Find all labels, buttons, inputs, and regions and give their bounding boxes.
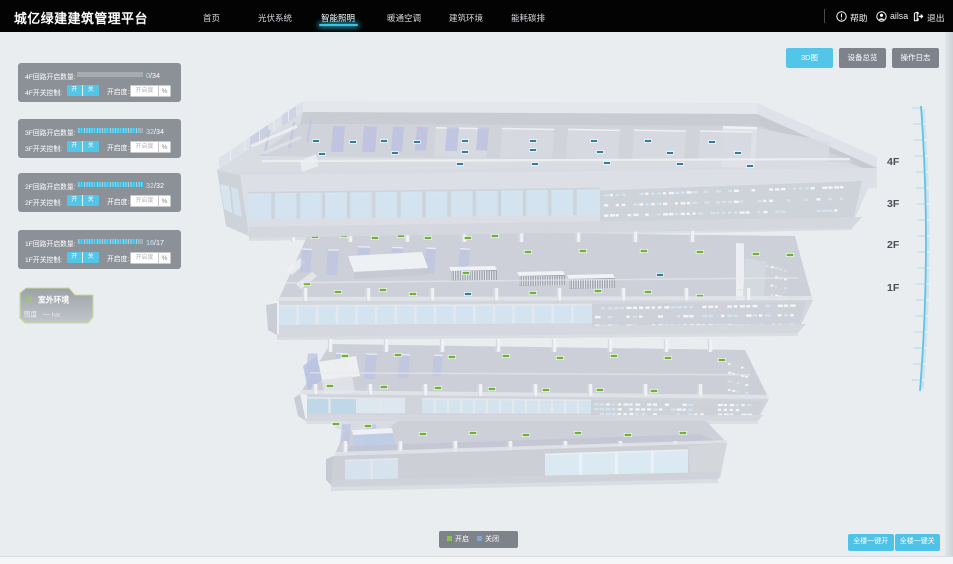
svg-text:照度: 照度 [24,310,38,319]
svg-text:///: /// [24,295,32,304]
svg-text:—: — [43,312,50,319]
svg-text:2F: 2F [887,239,900,251]
svg-text:室外环境: 室外环境 [38,295,69,305]
svg-text:3F: 3F [887,198,900,210]
svg-text:4F: 4F [887,156,900,168]
svg-text:1F: 1F [887,282,900,294]
svg-text:lux: lux [52,312,61,319]
